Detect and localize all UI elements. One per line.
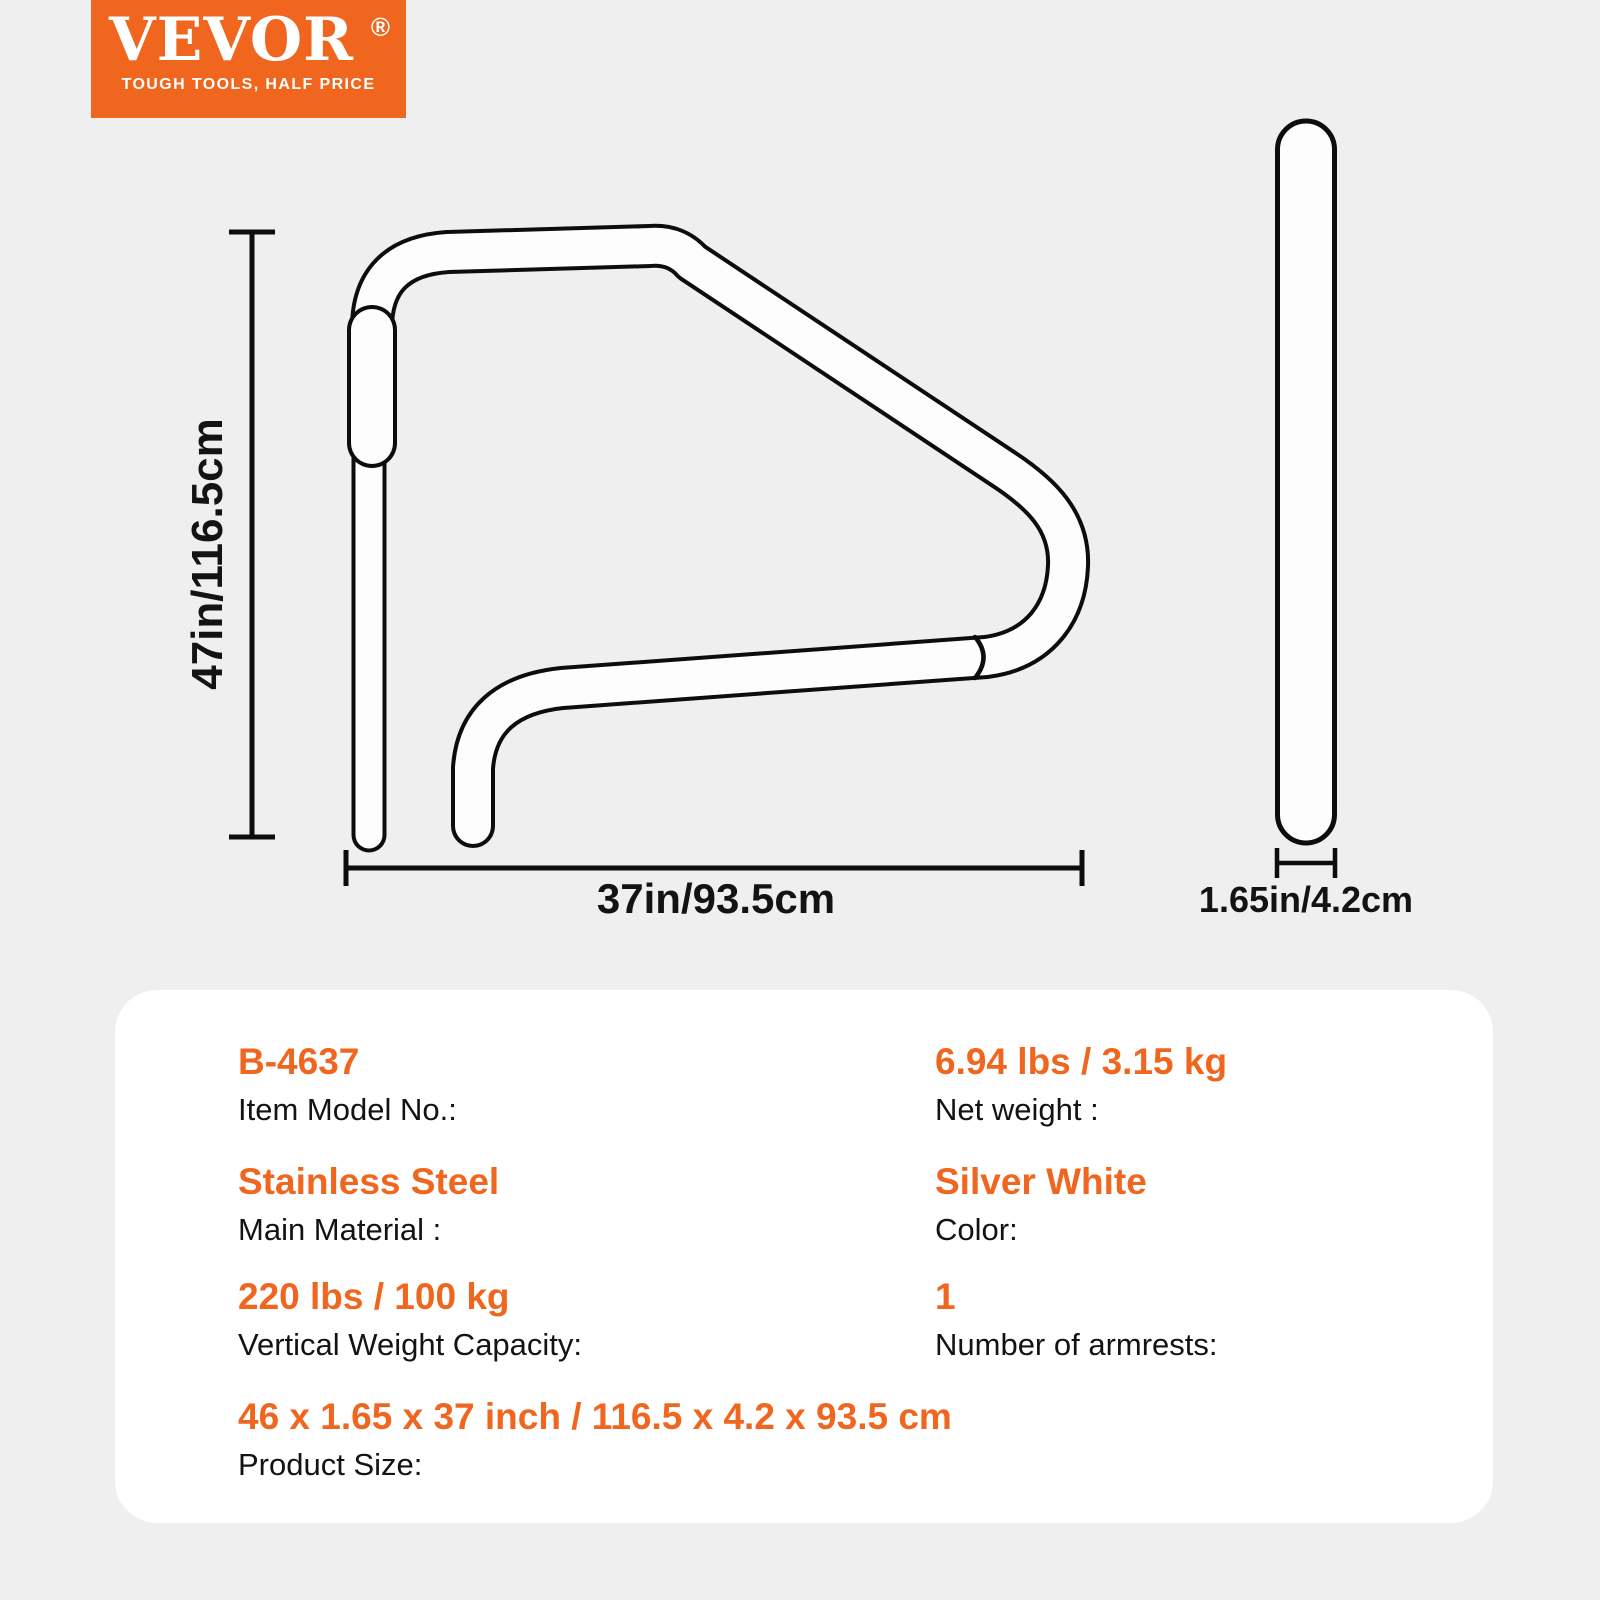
spec-material: Stainless Steel Main Material : <box>238 1160 499 1250</box>
thickness-dimension-label: 1.65in/4.2cm <box>1199 879 1413 920</box>
height-dimension <box>229 232 275 837</box>
spec-net-weight-label: Net weight : <box>935 1090 1227 1130</box>
spec-armrests: 1 Number of armrests: <box>935 1275 1218 1365</box>
spec-size: 46 x 1.65 x 37 inch / 116.5 x 4.2 x 93.5… <box>238 1395 952 1485</box>
spec-armrests-label: Number of armrests: <box>935 1325 1218 1365</box>
product-spec-page: { "colors": { "accent": "#F0661F", "back… <box>0 0 1600 1600</box>
thickness-dimension <box>1277 848 1335 878</box>
spec-size-label: Product Size: <box>238 1445 952 1485</box>
spec-capacity-label: Vertical Weight Capacity: <box>238 1325 582 1365</box>
handrail-front-view <box>369 246 1068 835</box>
spec-color: Silver White Color: <box>935 1160 1147 1250</box>
spec-material-value: Stainless Steel <box>238 1160 499 1204</box>
side-view-capsule <box>1278 121 1335 843</box>
spec-capacity: 220 lbs / 100 kg Vertical Weight Capacit… <box>238 1275 582 1365</box>
spec-material-label: Main Material : <box>238 1210 499 1250</box>
handrail-side-view <box>1278 121 1335 843</box>
spec-size-value: 46 x 1.65 x 37 inch / 116.5 x 4.2 x 93.5… <box>238 1395 952 1439</box>
spec-net-weight: 6.94 lbs / 3.15 kg Net weight : <box>935 1040 1227 1130</box>
height-dimension-label: 47in/116.5cm <box>183 418 232 690</box>
handrail-technical-drawing: 47in/116.5cm 37in/93.5cm 1.65in/4.2cm <box>0 0 1600 960</box>
spec-model: B-4637 Item Model No.: <box>238 1040 457 1130</box>
spec-model-value: B-4637 <box>238 1040 457 1084</box>
handrail-tube-fill <box>372 246 1068 826</box>
spec-color-label: Color: <box>935 1210 1147 1250</box>
spec-net-weight-value: 6.94 lbs / 3.15 kg <box>935 1040 1227 1084</box>
spec-panel: B-4637 Item Model No.: 6.94 lbs / 3.15 k… <box>115 990 1493 1523</box>
spec-armrests-value: 1 <box>935 1275 1218 1319</box>
spec-model-label: Item Model No.: <box>238 1090 457 1130</box>
spec-capacity-value: 220 lbs / 100 kg <box>238 1275 582 1319</box>
spec-color-value: Silver White <box>935 1160 1147 1204</box>
width-dimension-label: 37in/93.5cm <box>597 875 835 922</box>
